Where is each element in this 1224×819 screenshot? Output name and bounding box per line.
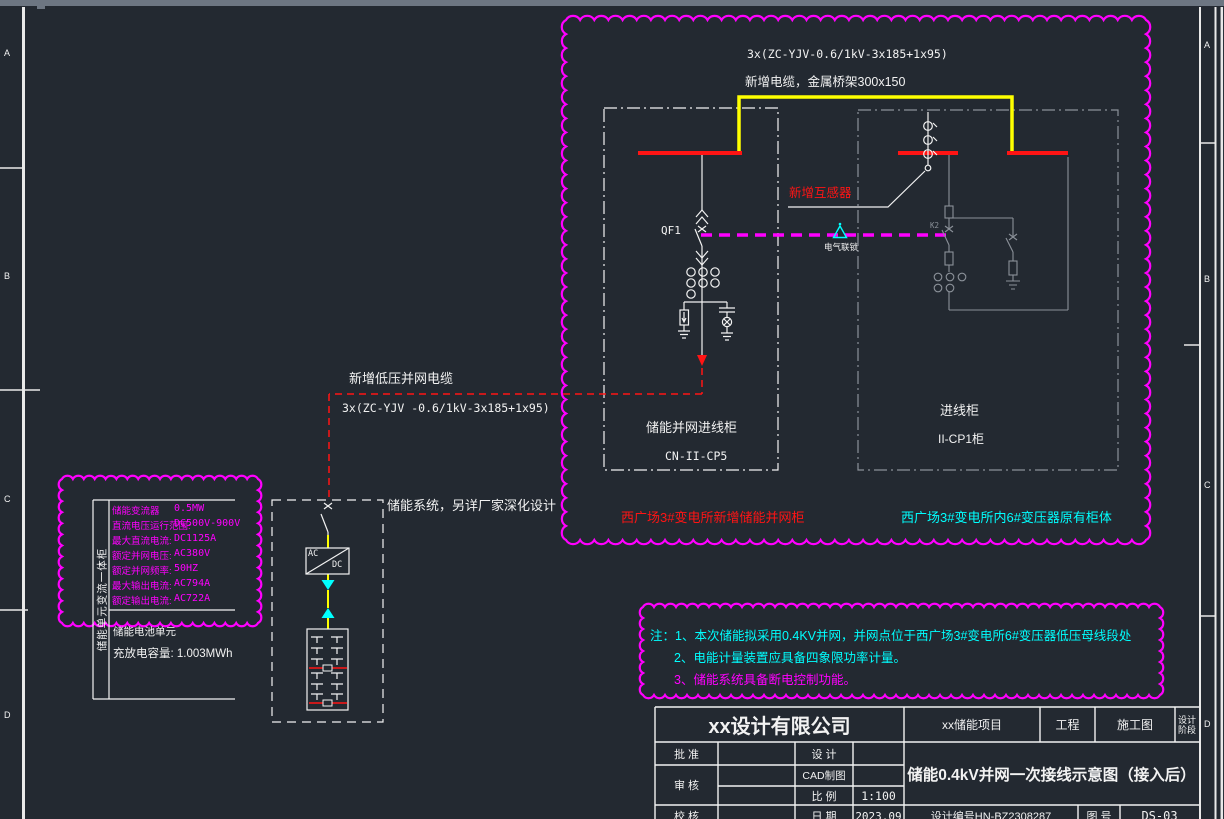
- right-cabinet-name: 进线柜: [940, 404, 979, 419]
- param-label: 额定并网电压:: [112, 548, 174, 562]
- company-name: xx设计有限公司: [655, 707, 904, 742]
- new-ct-label: 新增互感器: [789, 186, 852, 200]
- param-value: AC722A: [174, 593, 210, 607]
- param-label: 直流电压运行范围:: [112, 518, 174, 532]
- param-value: DC1125A: [174, 533, 216, 547]
- pcs-param-row: 最大直流电流:DC1125A: [112, 533, 234, 547]
- right-cabinet-code: II-CP1柜: [938, 433, 984, 447]
- converter-ac-label: AC: [308, 550, 318, 560]
- pcs-parameter-list: 储能变流器0.5MW 直流电压运行范围:DC500V-900V 最大直流电流:D…: [112, 503, 234, 607]
- fig-number: DS-03: [1120, 805, 1199, 819]
- battery-section-title: 储能电池单元: [113, 626, 176, 638]
- k2-tag: K2: [930, 222, 939, 231]
- schematic-canvas: [0, 0, 1224, 819]
- param-label: 额定并网频率:: [112, 563, 174, 577]
- zone-letter-left-c: C: [4, 494, 11, 504]
- zone-letter-left-d: D: [4, 710, 11, 720]
- cad-drawing-sheet: A B C D A B C D 3x(ZC-YJV-0.6/1kV-3x185+…: [0, 0, 1224, 819]
- project-label: 工程: [1040, 707, 1095, 742]
- pcs-param-row: 最大输出电流:AC794A: [112, 578, 234, 592]
- feeder-arrow-red: [697, 355, 707, 366]
- top-cable-note: 新增电缆，金属桥架300x150: [745, 75, 905, 89]
- left-cabinet-name: 储能并网进线柜: [646, 421, 737, 436]
- zone-letter-right-b: B: [1204, 274, 1210, 284]
- param-label: 最大输出电流:: [112, 578, 174, 592]
- param-value: AC380V: [174, 548, 210, 562]
- drawing-title: 储能0.4kV并网一次接线示意图（接入后）: [904, 742, 1199, 805]
- note-line-3: 3、储能系统具备断电控制功能。: [674, 673, 856, 687]
- check-label: 校 核: [655, 805, 718, 819]
- scale-value: 1:100: [853, 786, 904, 805]
- left-cabinet-code: CN-II-CP5: [665, 450, 727, 463]
- stage-label-line2: 阶段: [1178, 725, 1196, 735]
- param-label: 额定输出电流:: [112, 593, 174, 607]
- date-value: 2023.09: [853, 805, 904, 819]
- design-label: 设 计: [795, 742, 853, 765]
- pcs-param-row: 储能变流器0.5MW: [112, 503, 234, 517]
- storage-breaker-symbol: [321, 503, 332, 535]
- review-label: 审 核: [655, 765, 718, 805]
- qf1-feeder-symbol: [678, 155, 735, 355]
- zone-letter-left-a: A: [4, 48, 10, 58]
- param-value: AC794A: [174, 578, 210, 592]
- project-name: xx储能项目: [904, 707, 1040, 742]
- stage-label: 设计 阶段: [1175, 707, 1199, 742]
- interlock-marker: [834, 223, 847, 238]
- lv-cable-spec: 3x(ZC-YJV -0.6/1kV-3x185+1x95): [342, 402, 550, 415]
- interlock-label: 电气联锁: [824, 243, 858, 253]
- scale-label: 比 例: [795, 786, 853, 805]
- cad-label: CAD制图: [795, 765, 853, 786]
- battery-capacity: 充放电容量: 1.003MWh: [113, 648, 233, 661]
- left-cabinet-caption: 西广场3#变电所新增储能并网柜: [621, 511, 804, 526]
- note-line-2: 2、电能计量装置应具备四象限功率计量。: [674, 651, 906, 665]
- qf1-tag: QF1: [661, 225, 681, 238]
- existing-feeder-grey: [934, 155, 1068, 310]
- storage-system-note: 储能系统，另详厂家深化设计: [387, 499, 556, 514]
- converter-dc-label: DC: [332, 561, 342, 571]
- design-number: 设计编号HN-BZ2308287: [904, 805, 1078, 819]
- zone-letter-right-c: C: [1204, 480, 1211, 490]
- param-value: 0.5MW: [174, 503, 204, 517]
- zone-letter-right-d: D: [1204, 719, 1211, 729]
- param-label: 最大直流电流:: [112, 533, 174, 547]
- date-label: 日 期: [795, 805, 853, 819]
- param-value: DC500V-900V: [174, 518, 240, 532]
- zone-letter-left-b: B: [4, 271, 10, 281]
- new-cable-yellow: [739, 97, 1012, 151]
- note-line-1: 注：1、本次储能拟采用0.4KV并网，并网点位于西广场3#变电所6#变压器低压母…: [650, 629, 1131, 643]
- pcs-param-row: 额定并网电压:AC380V: [112, 548, 234, 562]
- battery-fuses: [323, 665, 332, 706]
- pcs-side-label: 储能单元变流一体柜: [95, 500, 108, 700]
- top-cable-spec: 3x(ZC-YJV-0.6/1kV-3x185+1x95): [747, 48, 948, 61]
- lv-cable-note: 新增低压并网电缆: [349, 372, 453, 387]
- stage-value: 施工图: [1095, 707, 1175, 742]
- cloud-border-main: [562, 16, 1150, 544]
- param-label: 储能变流器: [112, 503, 174, 517]
- param-value: 50HZ: [174, 563, 198, 577]
- fig-number-label: 图 号: [1078, 805, 1120, 819]
- zone-letter-right-a: A: [1204, 40, 1210, 50]
- pcs-param-row: 额定输出电流:AC722A: [112, 593, 234, 607]
- approve-label: 批 准: [655, 742, 718, 765]
- left-cabinet-outline: [604, 108, 778, 470]
- pcs-param-row: 额定并网频率:50HZ: [112, 563, 234, 577]
- pcs-param-row: 直流电压运行范围:DC500V-900V: [112, 518, 234, 532]
- right-cabinet-caption: 西广场3#变电所内6#变压器原有柜体: [901, 511, 1112, 526]
- right-cabinet-outline: [858, 110, 1118, 470]
- stage-label-line1: 设计: [1178, 715, 1196, 725]
